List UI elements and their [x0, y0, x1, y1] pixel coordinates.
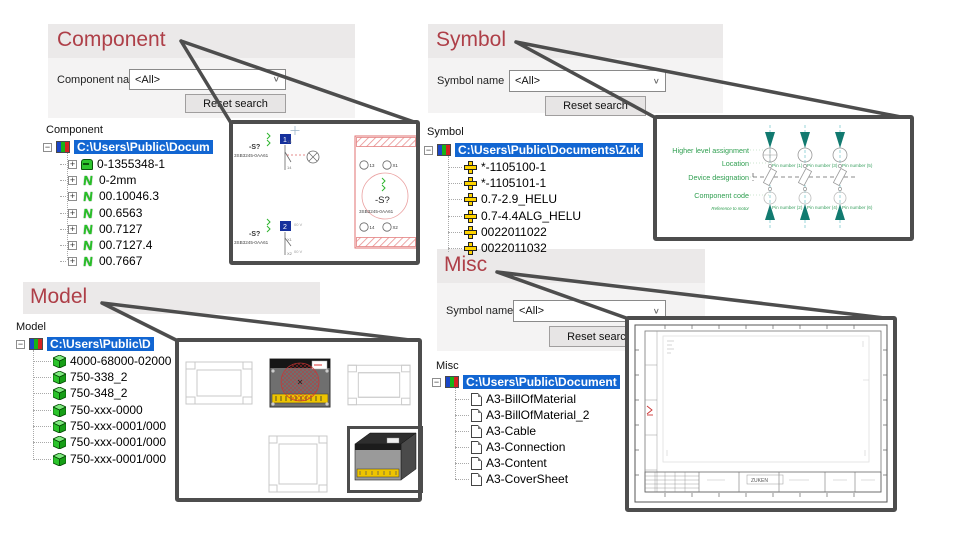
- library-icon: [56, 141, 70, 153]
- symbol-preview-drawing: Higher level assignment Location Device …: [657, 119, 910, 237]
- library-icon: [29, 338, 43, 350]
- svg-text:Higher level assignment: Higher level assignment: [672, 146, 749, 155]
- svg-text:-S?: -S?: [249, 144, 260, 151]
- svg-text:Location: Location: [722, 159, 749, 168]
- expand-icon[interactable]: +: [68, 209, 77, 218]
- tree-item[interactable]: *-1105100-1: [448, 159, 546, 175]
- tree-root-label[interactable]: C:\Users\Public\D: [47, 337, 154, 351]
- model-panel-title: Model: [30, 285, 87, 309]
- symbol-preview-callout: Higher level assignment Location Device …: [653, 115, 914, 241]
- expand-icon[interactable]: +: [68, 225, 77, 234]
- tree-root-component[interactable]: − C:\Users\Public\Docum: [43, 139, 213, 155]
- tree-item[interactable]: +00.7127: [60, 221, 142, 237]
- component-preview-callout: -S? 3SB3245-0AA61 1 13 14 -S? 3SB3245-0A…: [229, 120, 420, 265]
- tree-item[interactable]: A3-Connection: [455, 439, 565, 455]
- tree-item[interactable]: *-1105101-1: [448, 175, 546, 191]
- tree-root-label[interactable]: C:\Users\Public\Documents\Zuk: [455, 143, 643, 157]
- expand-icon[interactable]: +: [68, 241, 77, 250]
- symbol-reset-search-button[interactable]: Reset search: [545, 96, 646, 116]
- tree-item[interactable]: 750-xxx-0001/000: [33, 434, 166, 450]
- component-type-icon: [80, 239, 95, 252]
- model-preview-callout: [175, 338, 422, 502]
- tree-item[interactable]: 750-xxx-0000: [33, 402, 143, 418]
- expand-icon[interactable]: +: [68, 257, 77, 266]
- chevron-down-icon: ∨: [653, 307, 660, 316]
- tree-item[interactable]: +00.7667: [60, 253, 142, 269]
- component-filter-value: <All>: [135, 74, 160, 86]
- model-cube-icon: [53, 436, 66, 449]
- sheet-icon: [471, 473, 482, 486]
- svg-text:Reference to motor: Reference to motor: [711, 206, 749, 211]
- misc-preview-callout: ZUKEN: [625, 316, 897, 512]
- sheet-icon: [471, 425, 482, 438]
- svg-text:Pin number (3): Pin number (3): [807, 163, 838, 168]
- collapse-icon[interactable]: −: [424, 146, 433, 155]
- tree-item[interactable]: 750-338_2: [33, 369, 127, 385]
- tree-item[interactable]: 750-348_2: [33, 385, 127, 401]
- misc-panel-title: Misc: [444, 253, 487, 277]
- svg-text:14: 14: [370, 225, 375, 230]
- svg-text:00 V: 00 V: [294, 249, 303, 254]
- tree-item[interactable]: +00.10046.3: [60, 188, 159, 204]
- svg-text:Pin number (1): Pin number (1): [772, 163, 803, 168]
- component-name-combobox[interactable]: <All> ∨: [129, 69, 286, 90]
- svg-text:3SB3245-0AA61: 3SB3245-0AA61: [234, 153, 269, 158]
- model-thumbnail-front-view[interactable]: [269, 358, 331, 413]
- component-preview-drawing: -S? 3SB3245-0AA61 1 13 14 -S? 3SB3245-0A…: [233, 124, 416, 261]
- model-cube-icon: [53, 453, 66, 466]
- model-tree-label: Model: [16, 321, 46, 333]
- symbol-icon: [464, 242, 477, 255]
- tree-root-misc[interactable]: − C:\Users\Public\Document: [432, 374, 620, 390]
- tree-root-label[interactable]: C:\Users\Public\Document: [463, 375, 620, 389]
- symbol-name-combobox[interactable]: <All> ∨: [509, 70, 666, 92]
- model-thumbnail-wireframe[interactable]: [347, 360, 411, 415]
- svg-text:Device designation: Device designation: [688, 173, 749, 182]
- model-cube-icon: [53, 420, 66, 433]
- svg-text:Pin number (2): Pin number (2): [772, 205, 803, 210]
- svg-text:Pin number (6): Pin number (6): [842, 205, 873, 210]
- tree-item[interactable]: 750-xxx-0001/000: [33, 451, 166, 467]
- sheet-template-preview: ZUKEN: [629, 320, 893, 508]
- svg-text:-S?: -S?: [375, 195, 390, 206]
- tree-root-symbol[interactable]: − C:\Users\Public\Documents\Zuk: [424, 142, 643, 158]
- svg-text:13: 13: [370, 163, 375, 168]
- svg-text:13: 13: [287, 139, 292, 144]
- component-type-icon: [80, 207, 95, 220]
- svg-text:3SB3245-0AA61: 3SB3245-0AA61: [234, 240, 269, 245]
- svg-text:ZUKEN: ZUKEN: [751, 478, 768, 484]
- tree-item[interactable]: 0.7-2.9_HELU: [448, 191, 557, 207]
- symbol-panel-title: Symbol: [436, 28, 506, 52]
- symbol-tree-label: Symbol: [427, 126, 464, 138]
- model-cube-icon: [53, 355, 66, 368]
- tree-item[interactable]: +0-2mm: [60, 172, 136, 188]
- connector-component-icon: [81, 159, 93, 170]
- sheet-icon: [471, 409, 482, 422]
- symbol-filter-value: <All>: [515, 75, 540, 87]
- misc-tree-label: Misc: [436, 360, 459, 372]
- tree-root-label[interactable]: C:\Users\Public\Docum: [74, 140, 213, 154]
- svg-text:2: 2: [283, 224, 287, 231]
- tree-item[interactable]: 0022011022: [448, 224, 547, 240]
- tree-root-model[interactable]: − C:\Users\Public\D: [16, 336, 154, 352]
- expand-icon[interactable]: +: [68, 160, 77, 169]
- tree-item[interactable]: +00.7127.4: [60, 237, 152, 253]
- symbol-icon: [464, 226, 477, 239]
- tree-item[interactable]: +0-1355348-1: [60, 156, 165, 172]
- misc-filter-value: <All>: [519, 305, 544, 317]
- tree-item[interactable]: A3-CoverSheet: [455, 471, 568, 487]
- component-type-icon: [80, 190, 95, 203]
- symbol-icon: [464, 161, 477, 174]
- tree-item[interactable]: 4000-68000-02000: [33, 353, 171, 369]
- symbol-icon: [464, 210, 477, 223]
- svg-text:Pin number (4): Pin number (4): [807, 205, 838, 210]
- tree-item[interactable]: A3-Cable: [455, 423, 536, 439]
- component-type-icon: [80, 223, 95, 236]
- misc-symbol-name-label: Symbol name: [446, 305, 513, 317]
- svg-text:Component code: Component code: [694, 191, 749, 200]
- tree-item[interactable]: 0.7-4.4ALG_HELU: [448, 208, 581, 224]
- expand-icon[interactable]: +: [68, 192, 77, 201]
- model-cube-icon: [53, 387, 66, 400]
- svg-text:X1: X1: [393, 163, 399, 168]
- collapse-icon[interactable]: −: [16, 340, 25, 349]
- component-reset-search-button[interactable]: Reset search: [185, 94, 286, 113]
- svg-text:X2: X2: [393, 225, 399, 230]
- sheet-icon: [471, 393, 482, 406]
- tree-item[interactable]: A3-Content: [455, 455, 547, 471]
- component-panel-title: Component: [57, 28, 166, 52]
- component-type-icon: [80, 174, 95, 187]
- svg-text:X2: X2: [287, 251, 293, 256]
- model-cube-icon: [53, 371, 66, 384]
- component-tree-label: Component: [46, 124, 103, 136]
- model-thumbnail-wireframe[interactable]: [267, 432, 329, 501]
- tree-item[interactable]: 750-xxx-0001/000: [33, 418, 166, 434]
- tree-item[interactable]: +00.6563: [60, 205, 142, 221]
- component-type-icon: [80, 255, 95, 268]
- model-cube-icon: [53, 404, 66, 417]
- sheet-icon: [471, 441, 482, 454]
- chevron-down-icon: ∨: [653, 77, 660, 86]
- svg-text:Pin number (5): Pin number (5): [842, 163, 873, 168]
- svg-text:3SB3245-0AA61: 3SB3245-0AA61: [359, 209, 394, 214]
- library-icon: [437, 144, 451, 156]
- symbol-icon: [464, 177, 477, 190]
- svg-text:00 V: 00 V: [294, 222, 303, 227]
- svg-text:-S?: -S?: [249, 231, 260, 238]
- svg-text:14: 14: [287, 165, 292, 170]
- library-icon: [445, 376, 459, 388]
- tree-item[interactable]: A3-BillOfMaterial_2: [455, 407, 589, 423]
- svg-text:X1: X1: [287, 237, 293, 242]
- expand-icon[interactable]: +: [68, 176, 77, 185]
- model-thumbnail-3d-selected[interactable]: [347, 426, 423, 493]
- sheet-icon: [471, 457, 482, 470]
- symbol-icon: [464, 193, 477, 206]
- tree-item[interactable]: 0022011032: [448, 240, 547, 256]
- tree-item[interactable]: A3-BillOfMaterial: [455, 391, 576, 407]
- chevron-down-icon: ∨: [273, 75, 280, 84]
- collapse-icon[interactable]: −: [43, 143, 52, 152]
- symbol-name-label: Symbol name: [437, 75, 504, 87]
- collapse-icon[interactable]: −: [432, 378, 441, 387]
- model-thumbnail-wireframe[interactable]: [185, 358, 253, 413]
